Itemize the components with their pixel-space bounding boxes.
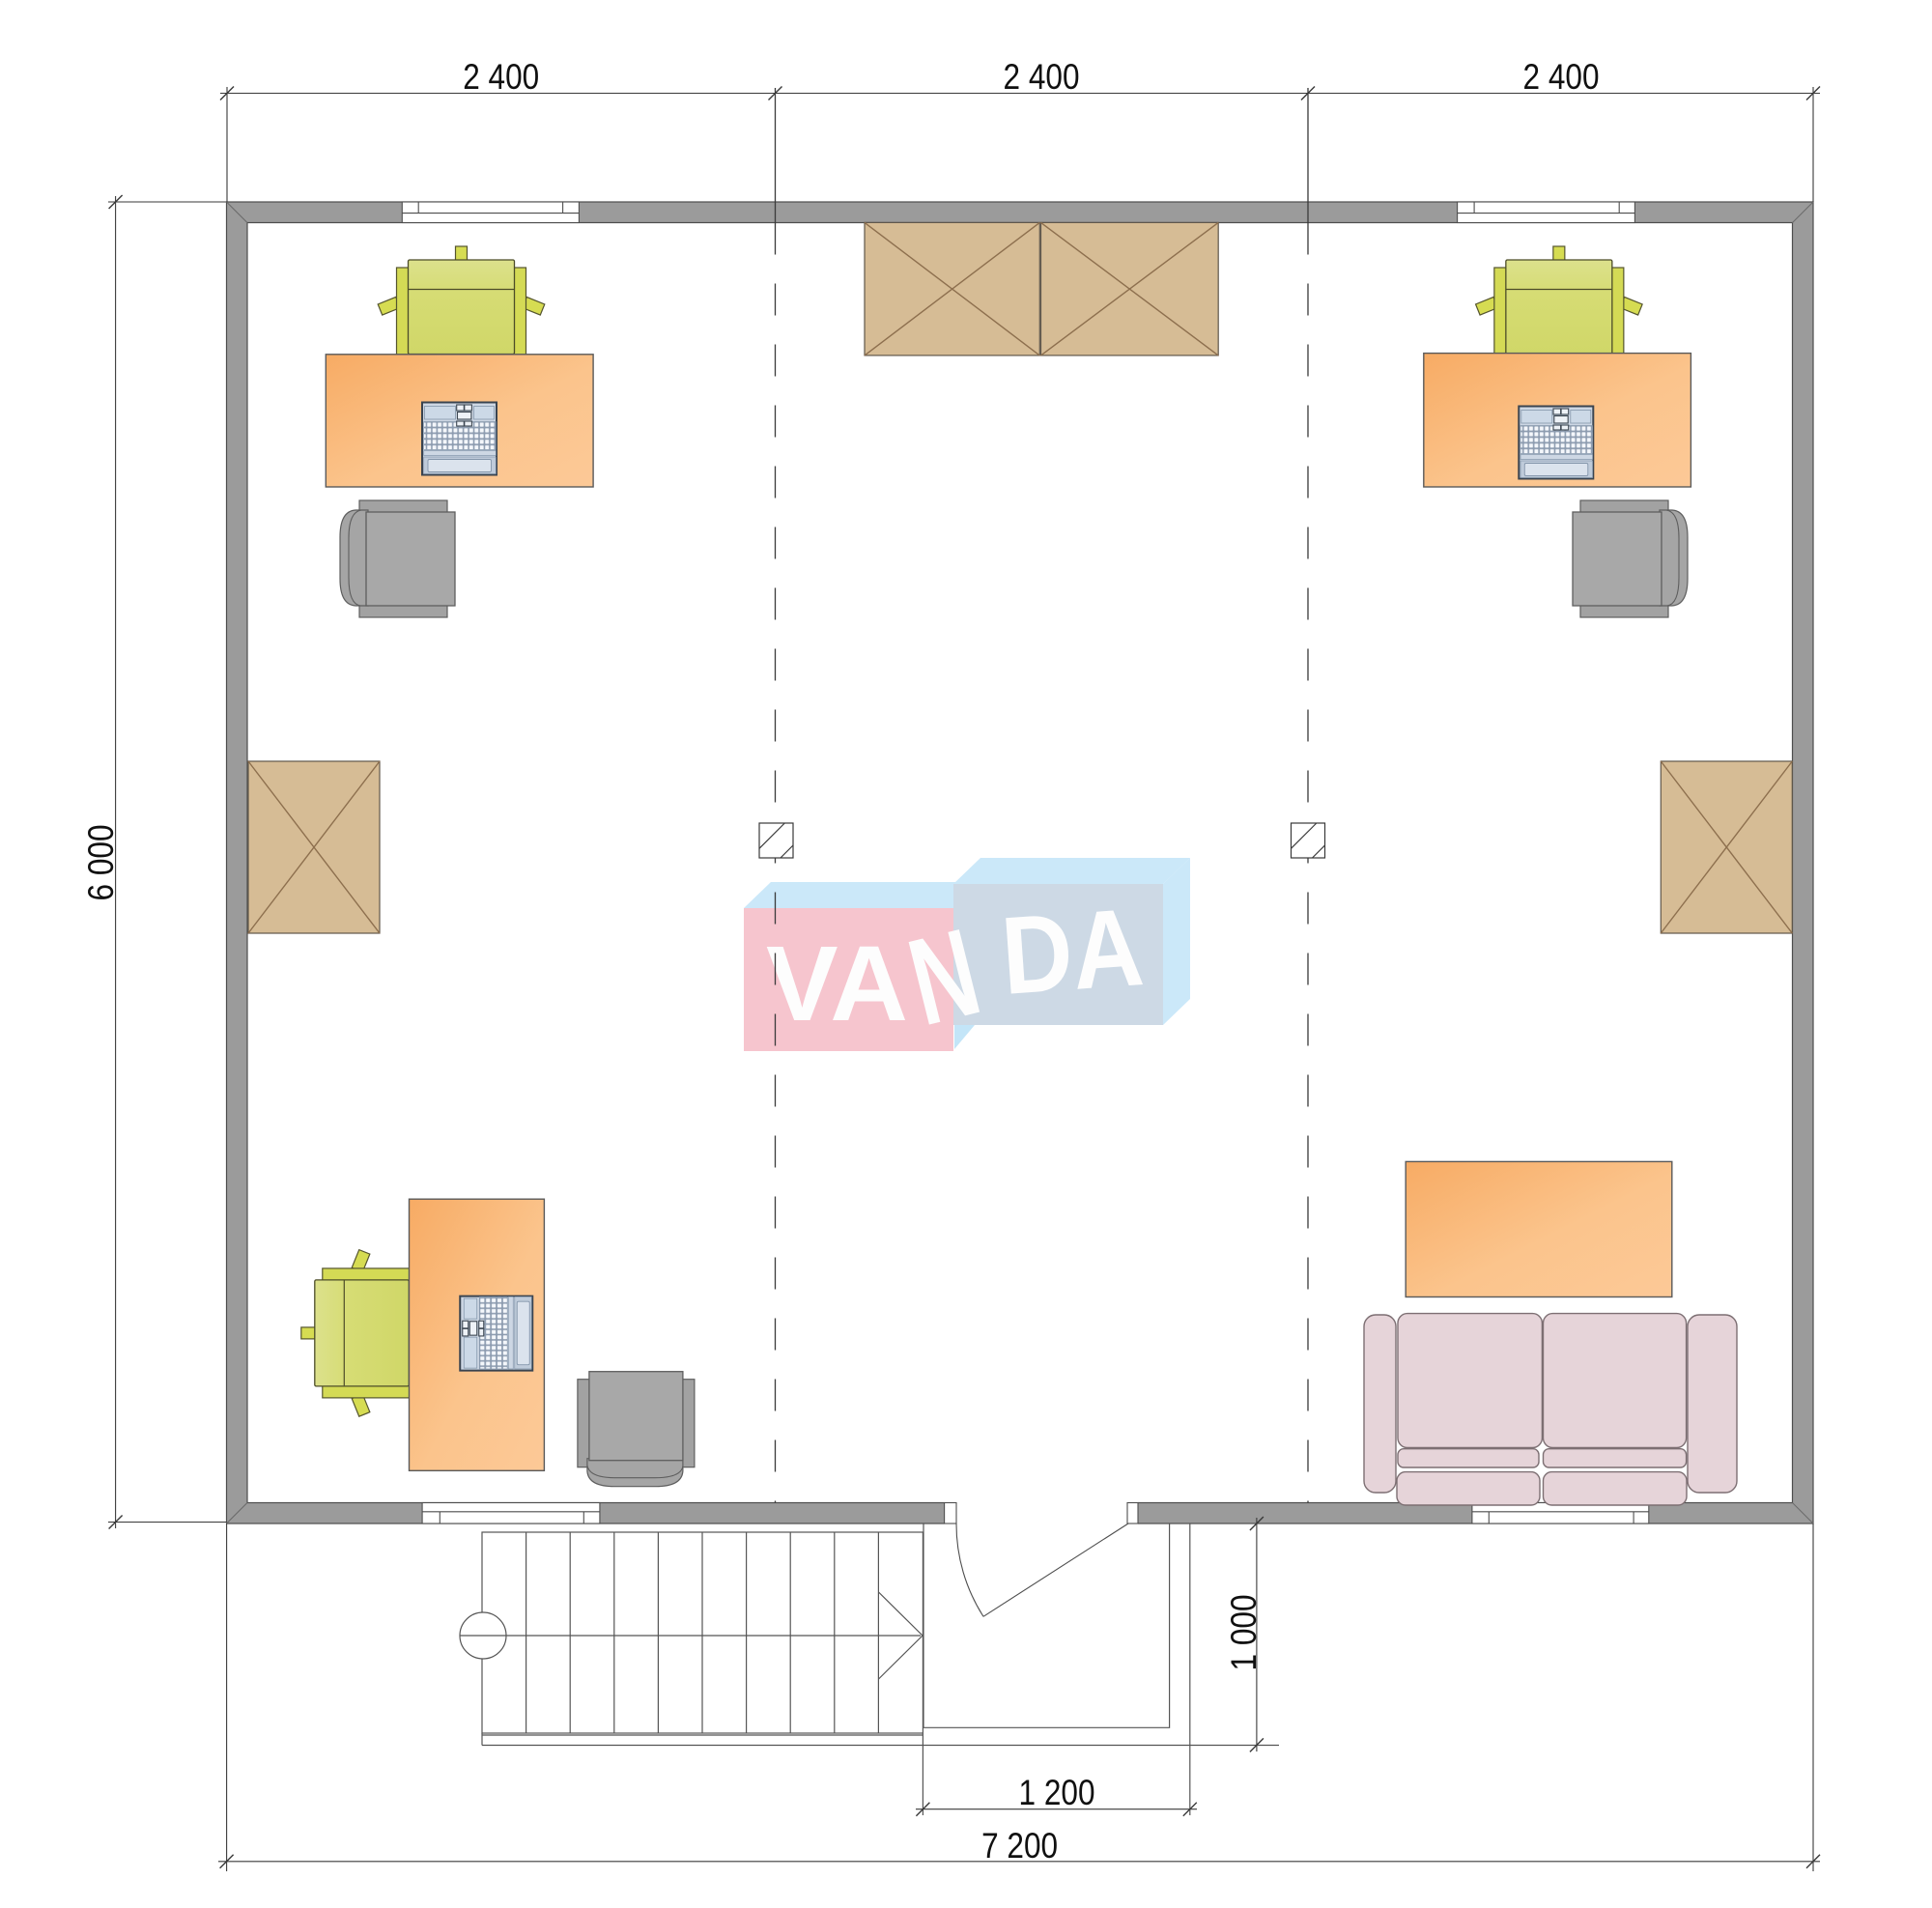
svg-text:2 400: 2 400: [1004, 57, 1080, 97]
svg-text:6 000: 6 000: [81, 825, 121, 901]
svg-text:DA: DA: [998, 886, 1148, 1018]
svg-text:1 000: 1 000: [1224, 1595, 1264, 1671]
svg-text:2 400: 2 400: [463, 57, 539, 97]
svg-text:VA: VA: [766, 925, 908, 1043]
svg-text:1 200: 1 200: [1019, 1773, 1095, 1812]
svg-text:7 200: 7 200: [981, 1826, 1058, 1865]
svg-text:2 400: 2 400: [1523, 57, 1600, 97]
